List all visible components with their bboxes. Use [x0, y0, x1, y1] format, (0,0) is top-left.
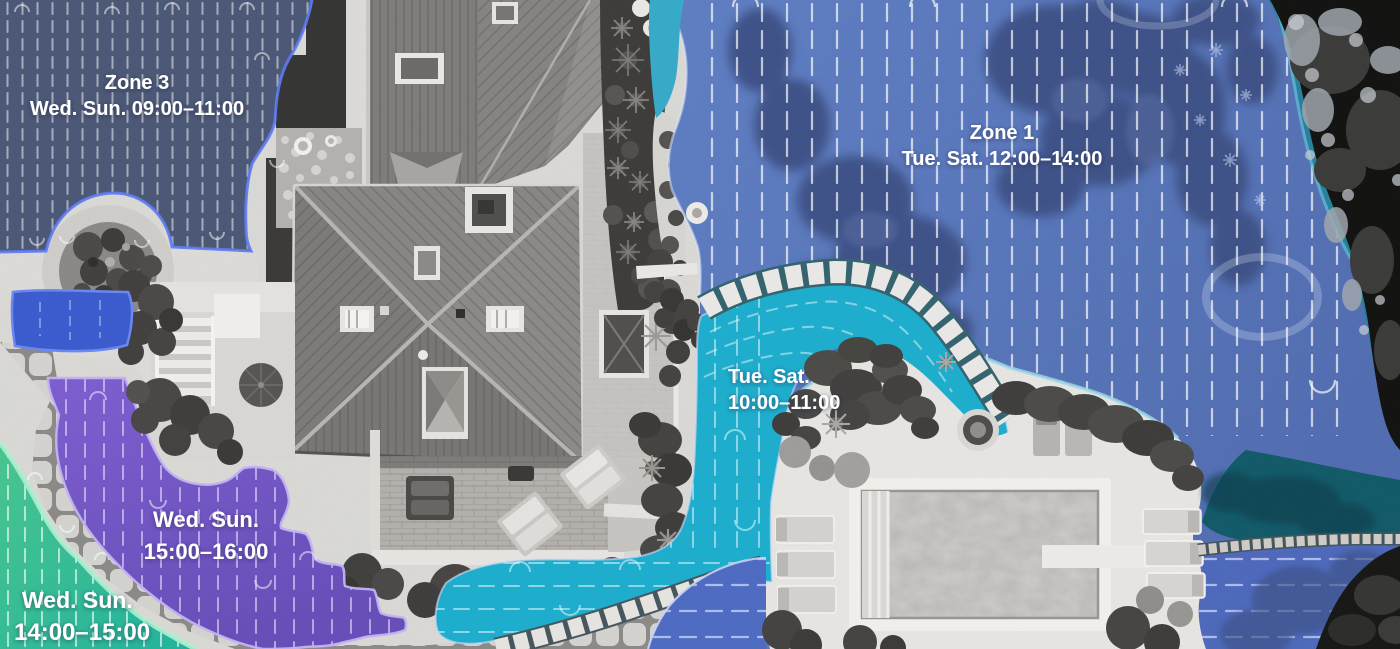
svg-text:10:00–11:00: 10:00–11:00 [728, 392, 840, 414]
svg-text:14:00–15:00: 14:00–15:00 [14, 619, 150, 646]
svg-text:Tue. Sat. 12:00–14:00: Tue. Sat. 12:00–14:00 [902, 148, 1103, 170]
svg-text:Tue. Sat.: Tue. Sat. [728, 366, 810, 388]
svg-text:Wed. Sun.: Wed. Sun. [153, 507, 259, 532]
svg-text:Zone 3: Zone 3 [105, 72, 169, 94]
svg-text:Wed. Sun. 09:00–11:00: Wed. Sun. 09:00–11:00 [30, 98, 244, 120]
svg-text:Zone 1: Zone 1 [970, 122, 1034, 144]
svg-text:15:00–16:00: 15:00–16:00 [144, 539, 269, 564]
svg-text:Wed. Sun.: Wed. Sun. [22, 587, 133, 613]
